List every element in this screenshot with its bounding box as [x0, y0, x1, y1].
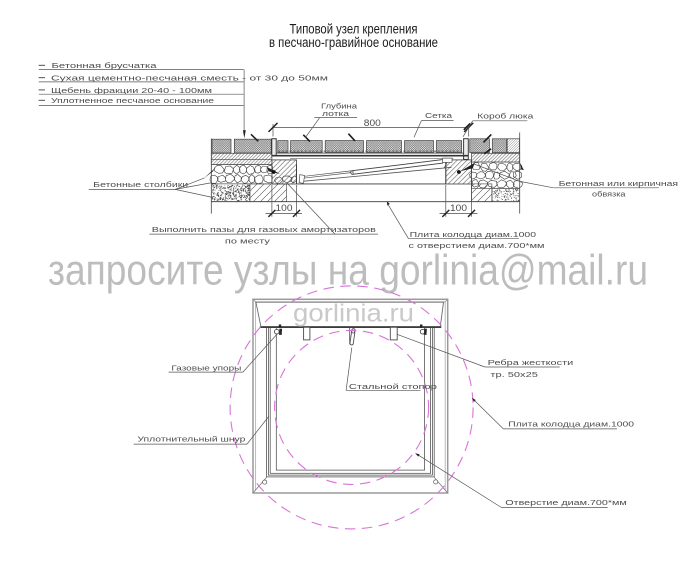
svg-text:Щебень фракции 20-40 - 100: Щебень фракции 20-40 - 100мм: [51, 86, 212, 95]
svg-text:запросите узлы на gorlinia@mai: запросите узлы на gorlinia@mail.ru: [48, 247, 648, 295]
svg-text:Уплотнительный шнур: Уплотнительный шнур: [137, 435, 245, 444]
svg-text:100: 100: [276, 203, 293, 213]
svg-text:Бетонная или кирпичная: Бетонная или кирпичная: [559, 179, 679, 188]
svg-text:лотка: лотка: [322, 109, 350, 118]
svg-text:Сетка: Сетка: [425, 111, 453, 120]
svg-text:800: 800: [364, 118, 381, 128]
svg-text:Газовые упоры: Газовые упоры: [171, 363, 241, 372]
svg-text:Ребра жесткости: Ребра жесткости: [488, 358, 574, 367]
svg-text:Плита колодца диам.1000: Плита колодца диам.1000: [410, 230, 536, 239]
svg-text:с отверстием диам.700*мм: с отверстием диам.700*мм: [409, 241, 545, 250]
svg-text:Выполнить пазы для газовых: Выполнить пазы для газовых амортизаторов: [152, 225, 376, 234]
svg-text:Бетонная брусчатка: Бетонная брусчатка: [52, 61, 158, 70]
svg-text:Плита колодца диам.1000: Плита колодца диам.1000: [508, 420, 634, 429]
svg-text:gorlinia.ru: gorlinia.ru: [293, 300, 414, 328]
svg-text:Отверстие диам.700*мм: Отверстие диам.700*мм: [505, 498, 627, 507]
svg-text:100: 100: [450, 203, 467, 213]
svg-text:Короб люка: Короб люка: [477, 111, 534, 120]
svg-text:Уплотненное песчаное основан: Уплотненное песчаное основание: [51, 96, 214, 105]
svg-text:Стальной стопор: Стальной стопор: [349, 382, 437, 391]
svg-text:в песчано-гравийное основание: в песчано-гравийное основание: [269, 35, 438, 50]
svg-text:Сухая цементно-песчаная смес: Сухая цементно-песчаная сместь - от 30 д…: [51, 74, 328, 83]
svg-text:обвязка: обвязка: [592, 189, 626, 198]
svg-text:Бетонные столбики: Бетонные столбики: [93, 180, 188, 189]
svg-text:тр. 50х25: тр. 50х25: [490, 370, 538, 379]
svg-text:по месту: по месту: [225, 237, 270, 246]
